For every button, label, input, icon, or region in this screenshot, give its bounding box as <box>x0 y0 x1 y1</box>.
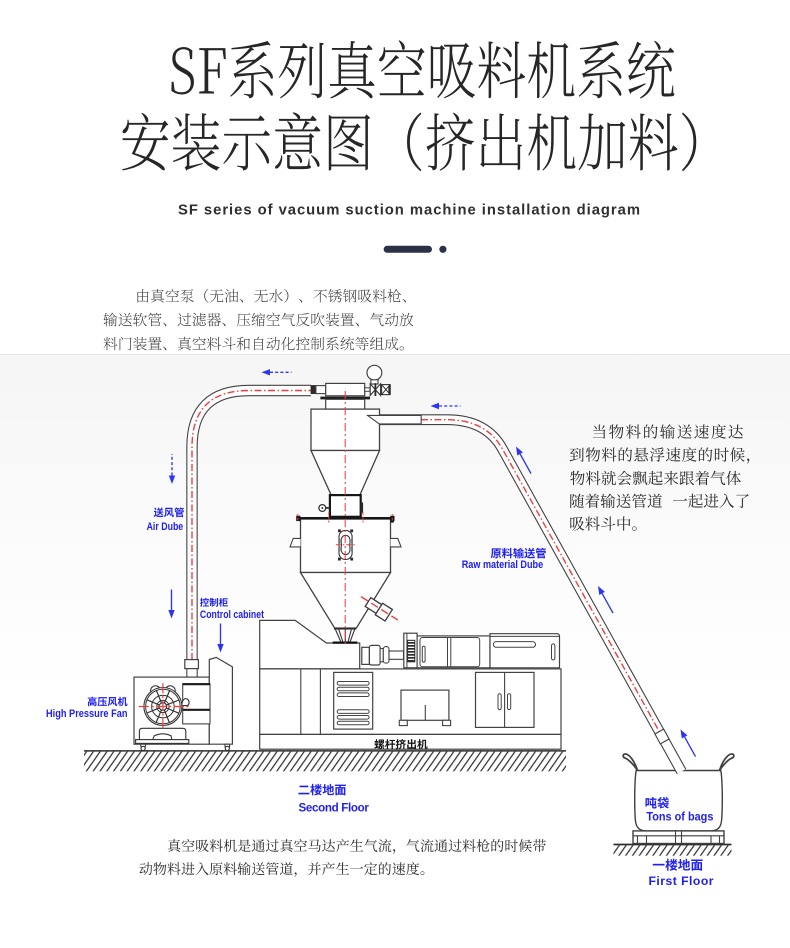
svg-text:Raw material Dube: Raw material Dube <box>462 559 544 571</box>
svg-text:Tons of bags: Tons of bags <box>646 810 713 824</box>
svg-text:Air Dube: Air Dube <box>147 521 184 533</box>
svg-text:First Floor: First Floor <box>649 874 714 888</box>
svg-text:SF series of vacuum suction ma: SF series of vacuum suction machine inst… <box>178 202 640 218</box>
svg-text:High Pressure Fan: High Pressure Fan <box>46 708 128 720</box>
svg-text:Second Floor: Second Floor <box>299 801 370 814</box>
svg-text:Control cabinet: Control cabinet <box>200 609 264 621</box>
